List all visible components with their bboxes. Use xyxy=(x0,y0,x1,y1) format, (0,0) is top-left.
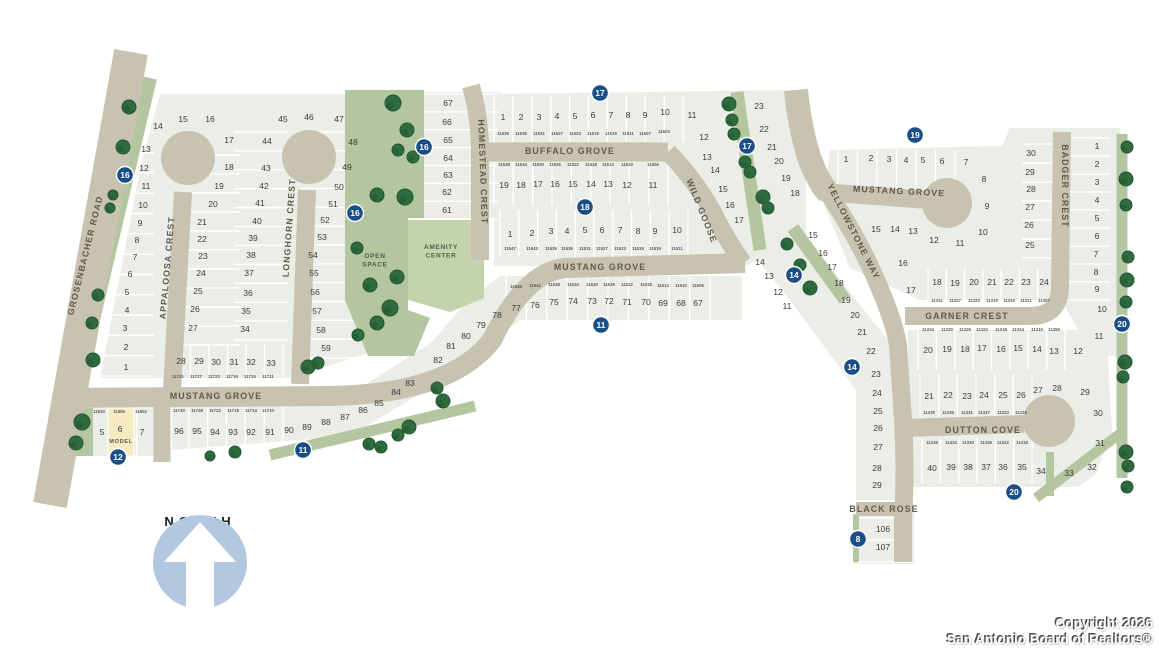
lot-number: 35 xyxy=(1017,462,1027,472)
tree-icon xyxy=(722,97,736,111)
tree-icon xyxy=(431,382,443,394)
lot-number: 21 xyxy=(987,277,997,287)
lot-number: 13 xyxy=(908,226,918,236)
lot-number: 4 xyxy=(565,226,570,236)
lot-address: 11322 xyxy=(997,440,1009,445)
lot-number: 34 xyxy=(1036,466,1046,476)
lot-number: 5 xyxy=(921,155,926,165)
area-label: OPEN xyxy=(364,253,385,260)
lot-number: 37 xyxy=(244,268,254,278)
lot-number: 36 xyxy=(243,288,253,298)
north-indicator: NORTH xyxy=(150,512,250,529)
lot-number: 20 xyxy=(774,156,784,166)
tree-icon xyxy=(375,441,387,453)
lot-number: 8 xyxy=(626,110,631,120)
lot-number: 96 xyxy=(174,426,184,436)
tree-icon xyxy=(403,426,409,432)
lot-number: 11 xyxy=(1095,331,1104,341)
lot-number: 32 xyxy=(246,357,256,367)
lot-number: 8 xyxy=(636,226,641,236)
lot-address: 11518 xyxy=(585,162,597,167)
lot-number: 2 xyxy=(519,112,524,122)
lot-number: 31 xyxy=(1095,438,1105,448)
lot-address: 11514 xyxy=(657,283,669,288)
lot-number: 21 xyxy=(197,217,207,227)
tree-icon xyxy=(1123,465,1128,470)
tree-icon xyxy=(70,442,76,448)
lot-number: 91 xyxy=(265,427,275,437)
lot-number: 106 xyxy=(876,524,891,534)
lot-number: 6 xyxy=(600,225,605,235)
lot-number: 77 xyxy=(511,303,521,313)
tree-icon xyxy=(116,140,130,154)
lot-number: 23 xyxy=(1021,277,1031,287)
lot-address: 11514 xyxy=(602,162,614,167)
lot-number: 90 xyxy=(284,425,294,435)
tree-icon xyxy=(370,316,384,330)
lot-number: 73 xyxy=(587,296,597,306)
lot-number: 24 xyxy=(872,388,882,398)
lot-address: 11511 xyxy=(671,246,683,251)
tree-icon xyxy=(69,436,83,450)
lot-number: 31 xyxy=(229,357,239,367)
lot-number: 50 xyxy=(334,182,344,192)
lot-number: 34 xyxy=(240,324,250,334)
lot-number: 14 xyxy=(755,257,765,267)
lot-number: 12 xyxy=(139,163,149,173)
lot-number: 81 xyxy=(446,341,456,351)
lot-address: 11506 xyxy=(692,283,704,288)
lot-number: 33 xyxy=(1064,468,1074,478)
lot-address: 11810 xyxy=(93,409,105,414)
lot-number: 72 xyxy=(604,296,614,306)
lot-number: 24 xyxy=(979,390,989,400)
tree-icon xyxy=(397,189,413,205)
tree-icon xyxy=(1123,256,1128,261)
lot-address: 11510 xyxy=(621,162,633,167)
lot-number: 19 xyxy=(841,295,851,305)
lot-number: 25 xyxy=(1025,240,1035,250)
lot-number: 16 xyxy=(898,258,908,268)
lot-address: 11523 xyxy=(614,246,626,251)
lot-number: 70 xyxy=(641,297,651,307)
lot-number: 38 xyxy=(246,250,256,260)
lot-address: 11319 xyxy=(986,298,998,303)
lot-address: 11314 xyxy=(1012,327,1024,332)
tree-icon xyxy=(1121,141,1133,153)
lot-address: 11503 xyxy=(658,129,670,134)
lot-address: 11538 xyxy=(548,282,560,287)
tree-icon xyxy=(1122,460,1134,472)
lot-address: 11539 xyxy=(545,246,557,251)
lot-number: 35 xyxy=(241,306,251,316)
lot-number: 20 xyxy=(850,310,860,320)
lot-number: 12 xyxy=(929,235,939,245)
tree-icon xyxy=(86,317,98,329)
lot-number: 2 xyxy=(869,153,874,163)
lot-address: 11310 xyxy=(1031,327,1043,332)
lot-number: 2 xyxy=(530,228,535,238)
lot-number: 7 xyxy=(140,427,145,437)
tree-icon xyxy=(400,123,414,137)
lot-number: 15 xyxy=(568,179,578,189)
lot-number: 40 xyxy=(252,216,262,226)
lot-number: 17 xyxy=(734,215,744,225)
tree-icon xyxy=(106,207,111,212)
lot-address: 11714 xyxy=(245,408,257,413)
copyright-notice: Copyright 2026 San Antonio Board of Real… xyxy=(947,616,1153,648)
tree-icon xyxy=(352,329,364,341)
lot-address: 11718 xyxy=(227,408,239,413)
lot-number: 51 xyxy=(328,199,338,209)
tree-icon xyxy=(757,196,763,202)
lot-address: 11319 xyxy=(1015,410,1027,415)
lot-number: 9 xyxy=(653,226,658,236)
lot-number: 46 xyxy=(304,112,314,122)
tree-icon xyxy=(353,334,358,339)
lot-address: 11323 xyxy=(997,410,1009,415)
street-name-label: DUTTON COVE xyxy=(945,425,1021,435)
lot-number: 5 xyxy=(125,287,130,297)
lot-address: 11535 xyxy=(561,246,573,251)
area-label: AMENITY xyxy=(424,244,458,251)
tree-icon xyxy=(312,357,324,369)
tree-icon xyxy=(1121,279,1127,285)
lot-number: 62 xyxy=(442,187,452,197)
lot-address: 11515 xyxy=(649,246,661,251)
lot-number: 89 xyxy=(302,422,312,432)
tree-icon xyxy=(782,243,787,248)
area-label: SPACE xyxy=(362,262,387,269)
lot-number: 22 xyxy=(1004,277,1014,287)
lot-number: 3 xyxy=(549,226,554,236)
lot-number: 1 xyxy=(508,229,513,239)
lot-number: 17 xyxy=(906,285,916,295)
lot-number: 63 xyxy=(443,170,453,180)
tree-icon xyxy=(390,270,404,284)
lot-number: 14 xyxy=(586,179,596,189)
lot-address: 11726 xyxy=(191,408,203,413)
lot-number: 19 xyxy=(942,344,952,354)
lot-number: 16 xyxy=(725,200,735,210)
lot-number: 4 xyxy=(1095,195,1100,205)
tree-icon xyxy=(729,133,734,138)
phase-badge-number: 11 xyxy=(597,320,606,330)
lot-address: 11334 xyxy=(922,327,934,332)
lot-address: 11727 xyxy=(190,374,202,379)
north-arrow-icon xyxy=(150,512,250,620)
lot-number: 15 xyxy=(178,114,188,124)
lot-address: 11527 xyxy=(551,131,563,136)
lot-address: 11538 xyxy=(498,162,510,167)
lot-address: 11802 xyxy=(135,409,147,414)
lot-number: 36 xyxy=(998,462,1008,472)
lot-number: 19 xyxy=(781,173,791,183)
lot-number: 86 xyxy=(358,405,368,415)
tree-icon xyxy=(727,119,732,124)
phase-badge-number: 8 xyxy=(856,534,861,544)
lot-number: 16 xyxy=(205,114,215,124)
lot-number: 5 xyxy=(100,427,105,437)
tree-icon xyxy=(745,171,750,176)
lot-number: 10 xyxy=(1097,304,1107,314)
tree-icon xyxy=(740,161,745,166)
tree-icon xyxy=(393,434,398,439)
lot-number: 28 xyxy=(176,356,186,366)
lot-number: 54 xyxy=(308,250,318,260)
lot-number: 16 xyxy=(818,248,828,258)
lot-number: 27 xyxy=(1033,385,1043,395)
lot-address: 11519 xyxy=(587,131,599,136)
lot-number: 2 xyxy=(1095,159,1100,169)
lot-number: 23 xyxy=(871,369,881,379)
lot-number: 43 xyxy=(261,163,271,173)
lot-number: 25 xyxy=(998,390,1008,400)
tree-icon xyxy=(302,366,308,372)
lot-number: 52 xyxy=(320,215,330,225)
lot-number: 18 xyxy=(960,344,970,354)
lot-address: 11730 xyxy=(173,408,185,413)
phase-badge-number: 20 xyxy=(1117,319,1127,329)
lot-number: 26 xyxy=(1016,390,1026,400)
lot-number: 13 xyxy=(603,179,613,189)
lot-number: 5 xyxy=(1095,213,1100,223)
plat-map-stage: GROSENBACHER ROADAPPALOOSA CRESTLONGHORN… xyxy=(0,0,1159,652)
lot-number: 76 xyxy=(530,300,540,310)
lot-number: 39 xyxy=(946,462,956,472)
lot-number: 9 xyxy=(1095,284,1100,294)
lot-number: 11 xyxy=(649,180,658,190)
lot-number: 11 xyxy=(688,110,697,120)
lot-number: 8 xyxy=(982,174,987,184)
tree-icon xyxy=(1119,361,1125,367)
tree-icon xyxy=(1122,251,1134,263)
tree-icon xyxy=(781,238,793,250)
lot-number: 45 xyxy=(278,114,288,124)
street-name-label: MUSTANG GROVE xyxy=(554,262,646,272)
lot-number: 14 xyxy=(1032,344,1042,354)
lot-number: 107 xyxy=(876,542,891,552)
lot-number: 16 xyxy=(550,179,560,189)
tree-icon xyxy=(87,322,92,327)
copyright-line2: San Antonio Board of Realtors® xyxy=(947,632,1153,648)
lot-address: 11543 xyxy=(526,246,538,251)
lot-number: 49 xyxy=(342,162,352,172)
tree-icon xyxy=(726,114,738,126)
lot-number: 10 xyxy=(672,225,682,235)
lot-number: 4 xyxy=(555,111,560,121)
tree-icon xyxy=(387,102,394,109)
tree-icon xyxy=(1118,355,1132,369)
lot-number: 41 xyxy=(255,198,265,208)
lot-number: 30 xyxy=(1026,148,1036,158)
lot-number: 32 xyxy=(1087,462,1097,472)
tree-icon xyxy=(86,353,100,367)
tree-icon xyxy=(392,144,404,156)
lot-number: 40 xyxy=(927,463,937,473)
lot-number: 22 xyxy=(197,234,207,244)
tree-icon xyxy=(1120,199,1132,211)
lot-number: 9 xyxy=(138,218,143,228)
lot-number: 3 xyxy=(537,112,542,122)
lot-number: 95 xyxy=(192,426,202,436)
tree-icon xyxy=(393,149,398,154)
lot-address: 11531 xyxy=(579,246,591,251)
lot-address: 11526 xyxy=(603,282,615,287)
tree-icon xyxy=(803,281,817,295)
lot-number: 74 xyxy=(568,296,578,306)
lot-number: 10 xyxy=(138,200,148,210)
lot-address: 11806 xyxy=(113,409,125,414)
lot-number: 64 xyxy=(443,153,453,163)
lot-number: 12 xyxy=(773,287,783,297)
lot-number: 5 xyxy=(573,111,578,121)
lot-number: 23 xyxy=(962,391,972,401)
lot-number: 4 xyxy=(904,155,909,165)
lot-number: 14 xyxy=(890,224,900,234)
phase-badge-number: 16 xyxy=(419,142,429,152)
lot-number: 20 xyxy=(969,277,979,287)
tree-icon xyxy=(205,451,215,461)
lot-number: 9 xyxy=(985,201,990,211)
tree-icon xyxy=(401,129,407,135)
lot-number: 7 xyxy=(1094,249,1099,259)
lot-number: 7 xyxy=(609,110,614,120)
lot-number: 94 xyxy=(210,427,220,437)
lot-number: 17 xyxy=(827,262,837,272)
tree-icon xyxy=(313,362,318,367)
lot-number: 12 xyxy=(699,132,709,142)
tree-icon xyxy=(436,394,450,408)
phase-badge-number: 17 xyxy=(595,88,605,98)
lot-address: 11339 xyxy=(923,410,935,415)
lot-address: 11519 xyxy=(632,246,644,251)
lot-number: 78 xyxy=(492,310,502,320)
road xyxy=(300,190,307,384)
lot-number: 59 xyxy=(321,343,331,353)
lot-number: 44 xyxy=(262,136,272,146)
phase-badge-number: 17 xyxy=(742,141,752,151)
lot-address: 11507 xyxy=(639,131,651,136)
lot-number: 18 xyxy=(224,162,234,172)
lot-number: 1 xyxy=(501,112,506,122)
lot-number: 71 xyxy=(622,297,632,307)
lot-number: 14 xyxy=(153,121,163,131)
lot-number: 33 xyxy=(266,358,276,368)
lot-number: 37 xyxy=(981,462,991,472)
lot-number: 6 xyxy=(128,269,133,279)
lot-number: 85 xyxy=(374,398,384,408)
lot-number: 1 xyxy=(844,154,849,164)
tree-icon xyxy=(1117,371,1129,383)
lot-number: 3 xyxy=(1095,177,1100,187)
lot-number: 28 xyxy=(1052,383,1062,393)
lot-number: 7 xyxy=(964,157,969,167)
lot-number: 13 xyxy=(141,144,151,154)
lot-number: 24 xyxy=(196,268,206,278)
cul-de-sac xyxy=(922,178,972,228)
phase-badge-number: 14 xyxy=(847,362,857,372)
lot-number: 15 xyxy=(1013,343,1023,353)
tree-icon xyxy=(123,106,129,112)
lot-address: 11530 xyxy=(532,162,544,167)
lot-number: 13 xyxy=(764,271,774,281)
tree-icon xyxy=(92,289,104,301)
lot-number: 15 xyxy=(808,230,818,240)
lot-address: 11523 xyxy=(569,131,581,136)
tree-icon xyxy=(437,400,443,406)
lot-number: 53 xyxy=(317,232,327,242)
lot-address: 11338 xyxy=(926,440,938,445)
street-name-label: GARNER CREST xyxy=(925,311,1009,321)
lot-number: 58 xyxy=(316,325,326,335)
area-label: MODEL xyxy=(109,439,132,445)
lot-address: 11711 xyxy=(262,374,274,379)
lot-address: 11715 xyxy=(244,374,256,379)
lot-address: 11722 xyxy=(209,408,221,413)
tree-icon xyxy=(762,202,774,214)
street-name-label: BUFFALO GROVE xyxy=(525,146,615,156)
lot-number: 26 xyxy=(873,423,883,433)
lot-address: 11534 xyxy=(515,162,527,167)
lot-number: 18 xyxy=(834,278,844,288)
lot-number: 30 xyxy=(1093,408,1103,418)
lot-number: 25 xyxy=(873,406,883,416)
lot-number: 8 xyxy=(135,235,140,245)
lot-number: 4 xyxy=(125,305,130,315)
tree-icon xyxy=(399,196,406,203)
street-name-label: MUSTANG GROVE xyxy=(170,391,262,401)
lot-number: 29 xyxy=(872,480,882,490)
tree-icon xyxy=(229,446,241,458)
lot-number: 28 xyxy=(872,463,882,473)
tree-icon xyxy=(1121,204,1126,209)
tree-icon xyxy=(382,300,398,316)
lot-number: 66 xyxy=(442,117,452,127)
lot-number: 30 xyxy=(211,357,221,367)
lot-number: 39 xyxy=(248,233,258,243)
tree-icon xyxy=(1120,178,1126,184)
tree-icon xyxy=(122,100,136,114)
tree-icon xyxy=(763,207,768,212)
lot-number: 20 xyxy=(923,345,933,355)
tree-icon xyxy=(391,276,397,282)
lot-number: 67 xyxy=(693,298,703,308)
lot-number: 69 xyxy=(658,298,668,308)
tree-icon xyxy=(385,95,401,111)
area-label: CENTER xyxy=(426,253,457,260)
lot-number: 21 xyxy=(857,327,867,337)
lot-number: 1 xyxy=(1095,141,1100,151)
tree-icon xyxy=(87,359,93,365)
lot-number: 88 xyxy=(321,417,331,427)
lot-number: 29 xyxy=(1080,387,1090,397)
lot-number: 5 xyxy=(583,225,588,235)
tree-icon xyxy=(370,188,384,202)
tree-icon xyxy=(384,307,391,314)
lot-number: 47 xyxy=(334,114,344,124)
lot-number: 19 xyxy=(214,181,224,191)
phase-badge-number: 20 xyxy=(1009,487,1019,497)
lot-number: 29 xyxy=(194,356,204,366)
phase-badge-number: 14 xyxy=(789,270,799,280)
lot-number: 15 xyxy=(871,224,881,234)
lot-number: 23 xyxy=(198,251,208,261)
lot-number: 56 xyxy=(310,287,320,297)
lot-number: 27 xyxy=(873,442,883,452)
phase-badge-number: 12 xyxy=(113,452,123,462)
lot-number: 6 xyxy=(1095,231,1100,241)
